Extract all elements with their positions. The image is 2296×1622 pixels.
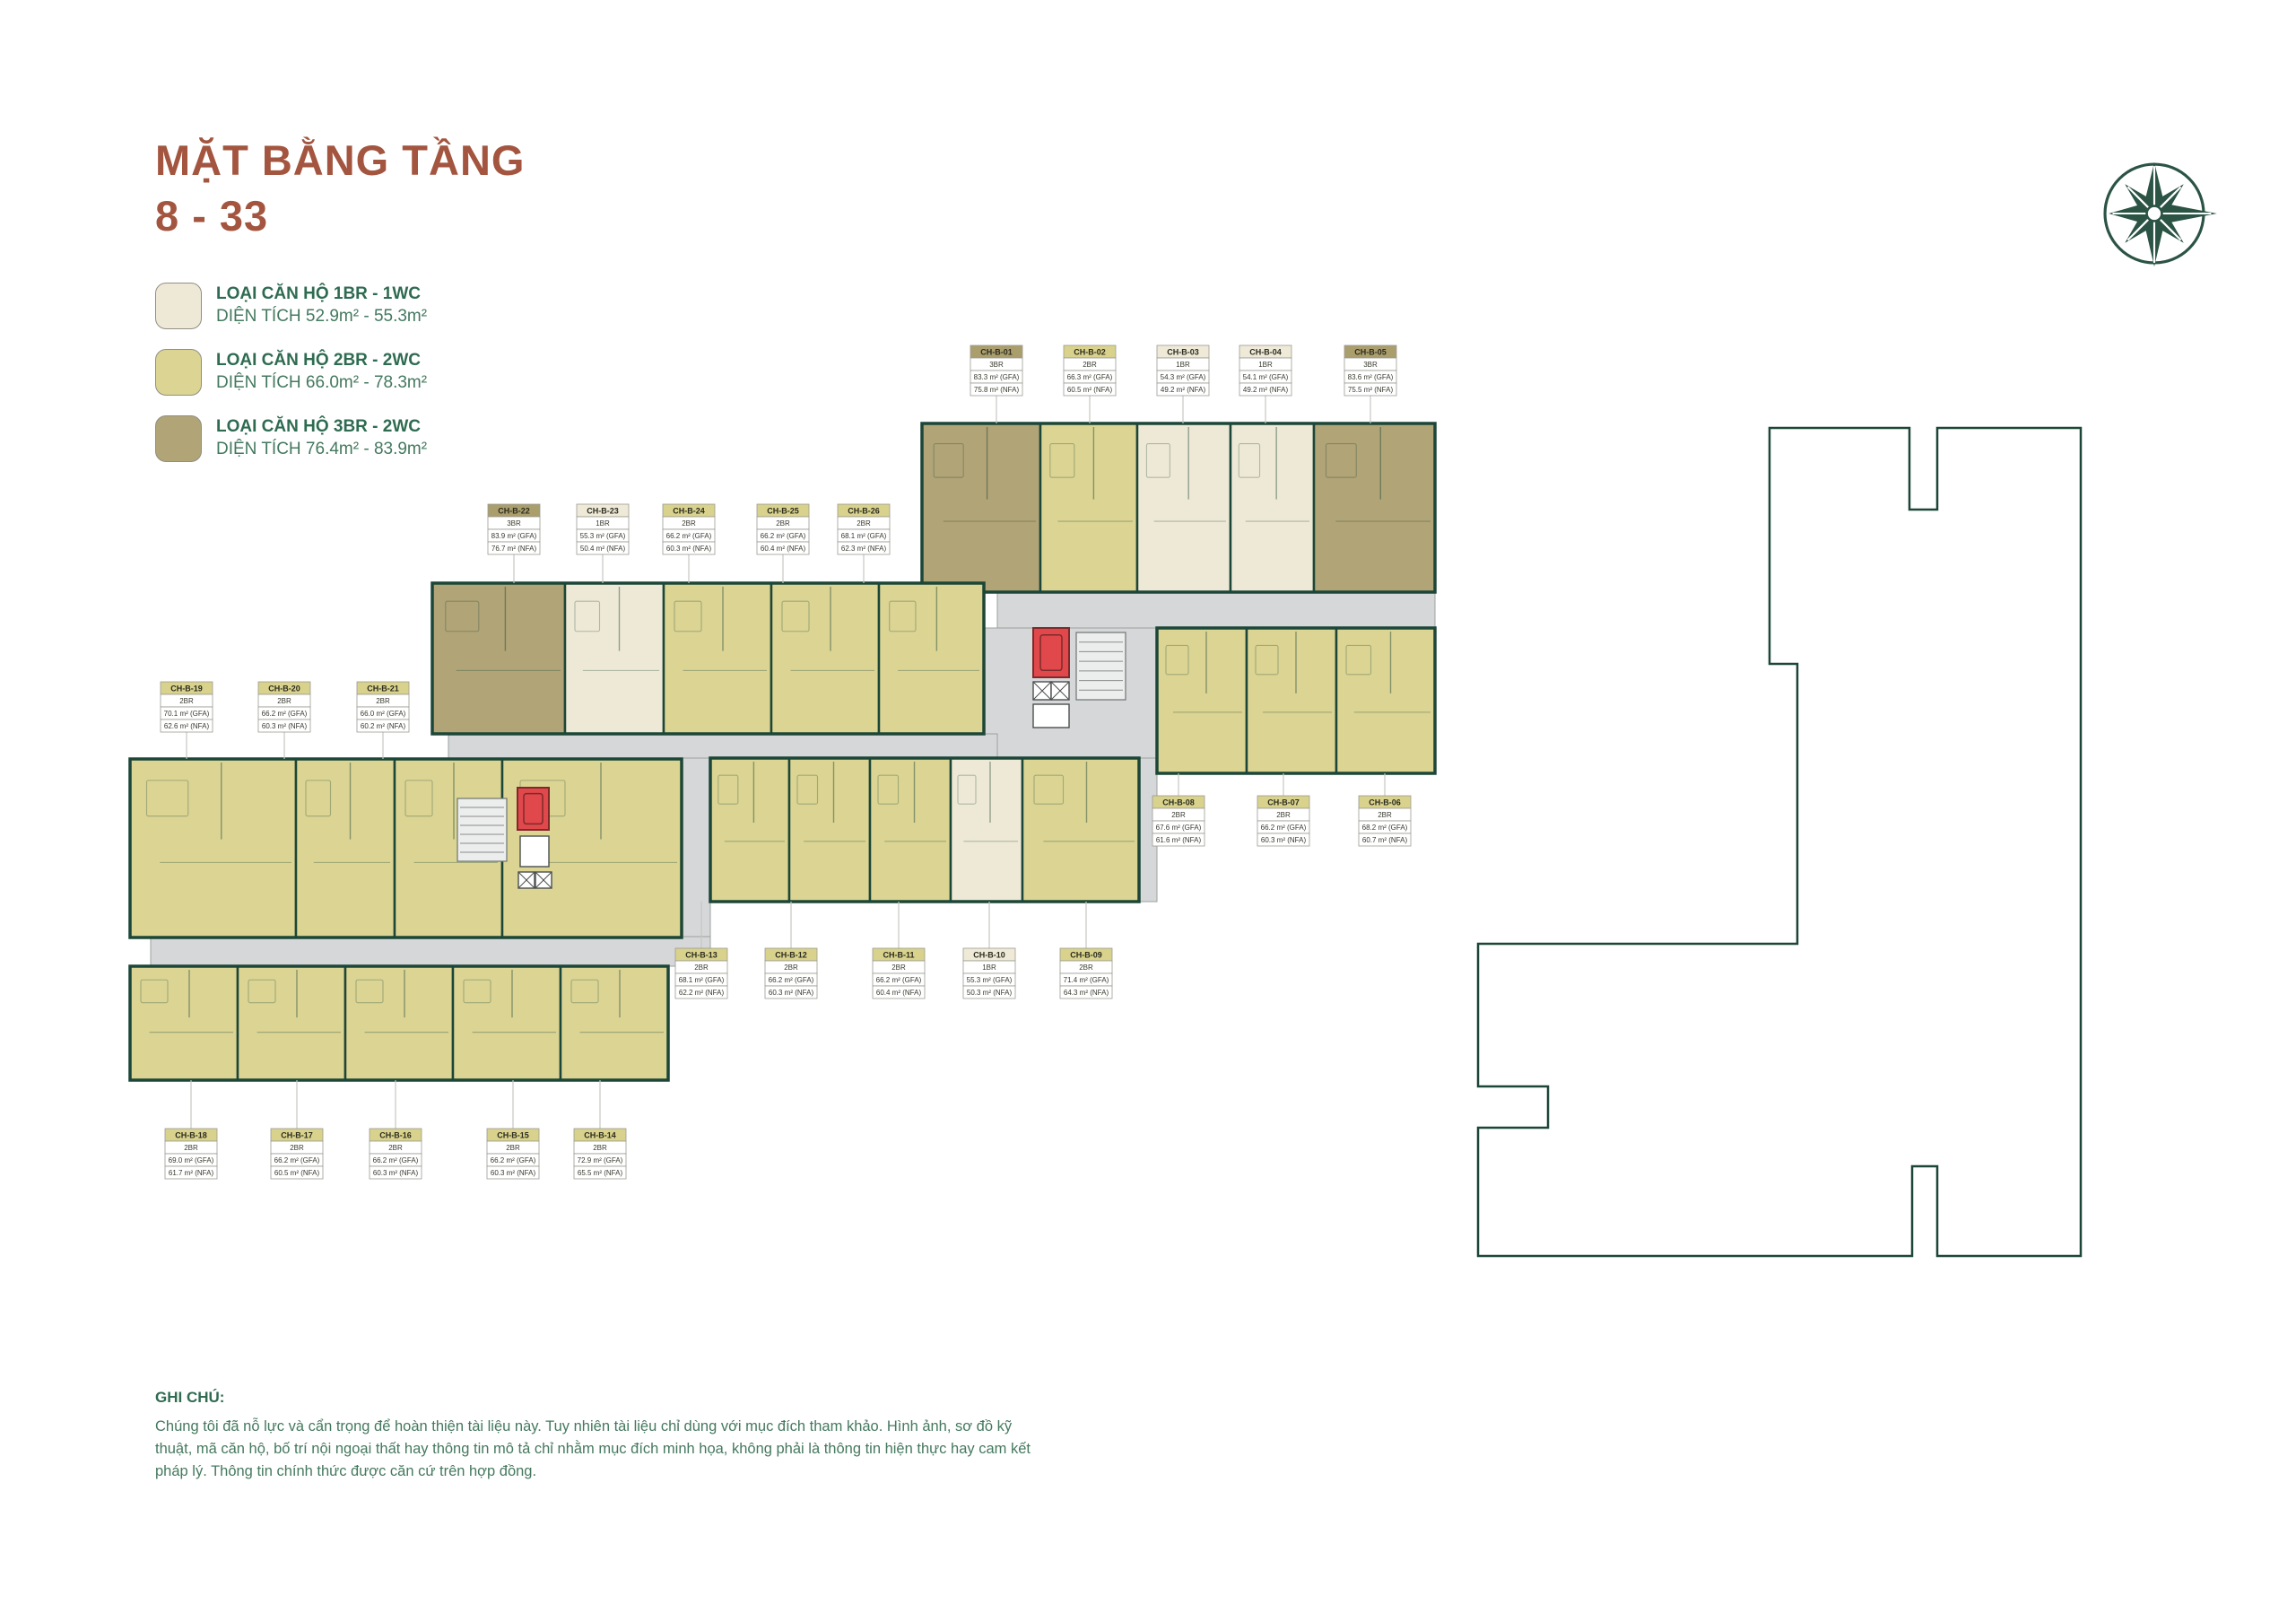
unit-label-text: 60.3 m² (NFA) bbox=[491, 1169, 536, 1177]
elevator-shaft bbox=[1033, 704, 1069, 728]
unit-label-text: 66.2 m² (GFA) bbox=[491, 1156, 536, 1164]
apartment-unit bbox=[922, 423, 1040, 592]
unit-label-text: 54.3 m² (GFA) bbox=[1161, 373, 1206, 381]
unit-label-text: 55.3 m² (GFA) bbox=[967, 976, 1013, 984]
unit-label-text: 75.5 m² (NFA) bbox=[1348, 386, 1394, 394]
stairwell bbox=[1076, 632, 1126, 700]
unit-label-text: 66.2 m² (GFA) bbox=[666, 532, 712, 540]
apartment-unit bbox=[238, 966, 345, 1080]
apartment-unit bbox=[130, 966, 238, 1080]
apartment-unit bbox=[664, 583, 771, 734]
unit-label-text: CH-B-21 bbox=[367, 685, 399, 693]
unit-label-text: 60.3 m² (NFA) bbox=[262, 722, 308, 730]
unit-label-text: 55.3 m² (GFA) bbox=[580, 532, 626, 540]
unit-label-text: 60.3 m² (NFA) bbox=[666, 545, 712, 553]
unit-label-text: 2BR bbox=[1083, 361, 1097, 369]
unit-label-text: 50.3 m² (NFA) bbox=[967, 989, 1013, 997]
apartment-unit bbox=[879, 583, 984, 734]
unit-label-text: 2BR bbox=[1276, 811, 1291, 819]
unit-label-text: 2BR bbox=[694, 964, 709, 972]
unit-label-text: 75.8 m² (NFA) bbox=[974, 386, 1020, 394]
unit-label-text: CH-B-20 bbox=[268, 685, 300, 693]
unit-label-text: 50.4 m² (NFA) bbox=[580, 545, 626, 553]
apartment-unit bbox=[1022, 758, 1139, 902]
unit-label-text: CH-B-10 bbox=[973, 951, 1005, 960]
unit-label-text: 2BR bbox=[682, 519, 696, 528]
unit-label-text: 49.2 m² (NFA) bbox=[1161, 386, 1206, 394]
corridor bbox=[997, 592, 1435, 628]
unit-label-text: 62.6 m² (NFA) bbox=[164, 722, 210, 730]
unit-label-text: CH-B-08 bbox=[1162, 798, 1195, 807]
unit-label-text: CH-B-18 bbox=[175, 1131, 207, 1140]
unit-label-text: 64.3 m² (NFA) bbox=[1064, 989, 1109, 997]
unit-label-text: CH-B-09 bbox=[1070, 951, 1102, 960]
apartment-unit bbox=[951, 758, 1022, 902]
unit-label-text: 62.3 m² (NFA) bbox=[841, 545, 887, 553]
unit-label-text: 76.7 m² (NFA) bbox=[491, 545, 537, 553]
apartment-unit bbox=[1314, 423, 1435, 592]
unit-label-text: 2BR bbox=[277, 697, 291, 705]
unit-label-text: 66.2 m² (GFA) bbox=[274, 1156, 320, 1164]
unit-label-text: CH-B-22 bbox=[498, 507, 530, 516]
unit-label-text: 2BR bbox=[179, 697, 194, 705]
unit-label-text: 60.4 m² (NFA) bbox=[876, 989, 922, 997]
apartment-unit bbox=[130, 759, 296, 937]
unit-label-text: CH-B-25 bbox=[767, 507, 799, 516]
unit-label-text: 1BR bbox=[1176, 361, 1190, 369]
unit-label-text: 2BR bbox=[290, 1144, 304, 1152]
apartment-unit bbox=[789, 758, 870, 902]
unit-label-text: 2BR bbox=[184, 1144, 198, 1152]
unit-label-text: 66.2 m² (GFA) bbox=[876, 976, 922, 984]
unit-label-text: 60.2 m² (NFA) bbox=[361, 722, 406, 730]
corridor bbox=[448, 734, 997, 758]
unit-label-text: 69.0 m² (GFA) bbox=[169, 1156, 214, 1164]
unit-label-text: 2BR bbox=[1378, 811, 1392, 819]
unit-label-text: 60.5 m² (NFA) bbox=[274, 1169, 320, 1177]
apartment-unit bbox=[1040, 423, 1137, 592]
unit-label-text: 66.3 m² (GFA) bbox=[1067, 373, 1113, 381]
note-block: GHI CHÚ: Chúng tôi đã nỗ lực và cẩn trọn… bbox=[155, 1389, 1052, 1483]
floor-plan: CH-B-013BR83.3 m² (GFA)75.8 m² (NFA)CH-B… bbox=[0, 0, 2296, 1622]
unit-label-text: 62.2 m² (NFA) bbox=[679, 989, 725, 997]
unit-label-text: CH-B-12 bbox=[775, 951, 807, 960]
unit-label-text: CH-B-26 bbox=[848, 507, 880, 516]
unit-label-text: 60.7 m² (NFA) bbox=[1362, 836, 1408, 844]
unit-label-text: 83.9 m² (GFA) bbox=[491, 532, 537, 540]
unit-label-text: CH-B-02 bbox=[1074, 348, 1106, 357]
unit-label-text: CH-B-04 bbox=[1249, 348, 1282, 357]
unit-label-text: CH-B-07 bbox=[1267, 798, 1300, 807]
unit-label-text: 60.3 m² (NFA) bbox=[373, 1169, 419, 1177]
apartment-unit bbox=[453, 966, 561, 1080]
apartment-unit bbox=[565, 583, 664, 734]
unit-label-text: 68.2 m² (GFA) bbox=[1362, 824, 1408, 832]
unit-label-text: 2BR bbox=[388, 1144, 403, 1152]
apartment-unit bbox=[1231, 423, 1314, 592]
apartment-unit bbox=[345, 966, 453, 1080]
unit-label-text: 60.3 m² (NFA) bbox=[769, 989, 814, 997]
unit-label-text: 65.5 m² (NFA) bbox=[578, 1169, 623, 1177]
elevator-shaft bbox=[520, 836, 549, 867]
corridor bbox=[151, 937, 710, 966]
apartment-unit bbox=[710, 758, 789, 902]
unit-label-text: 68.1 m² (GFA) bbox=[679, 976, 725, 984]
unit-label-text: 49.2 m² (NFA) bbox=[1243, 386, 1289, 394]
apartment-unit bbox=[870, 758, 951, 902]
unit-label-text: 2BR bbox=[857, 519, 871, 528]
unit-label-text: CH-B-24 bbox=[673, 507, 705, 516]
unit-label-text: CH-B-11 bbox=[883, 951, 914, 960]
unit-label-text: 83.3 m² (GFA) bbox=[974, 373, 1020, 381]
unit-label-text: 1BR bbox=[982, 964, 996, 972]
unit-label-text: 68.1 m² (GFA) bbox=[841, 532, 887, 540]
unit-label-text: 2BR bbox=[891, 964, 906, 972]
unit-label-text: CH-B-03 bbox=[1167, 348, 1199, 357]
unit-label-text: CH-B-19 bbox=[170, 685, 203, 693]
apartment-unit bbox=[296, 759, 395, 937]
unit-label-text: CH-B-17 bbox=[281, 1131, 313, 1140]
unit-label-text: 3BR bbox=[1363, 361, 1378, 369]
adjacent-tower-outline bbox=[1478, 428, 2081, 1256]
unit-label-text: 2BR bbox=[776, 519, 790, 528]
unit-label-text: CH-B-01 bbox=[980, 348, 1013, 357]
unit-label-text: CH-B-15 bbox=[497, 1131, 529, 1140]
unit-label-text: 2BR bbox=[1079, 964, 1093, 972]
unit-label-text: 3BR bbox=[507, 519, 521, 528]
unit-label-text: 60.4 m² (NFA) bbox=[761, 545, 806, 553]
unit-label-text: 66.2 m² (GFA) bbox=[761, 532, 806, 540]
unit-label-text: CH-B-13 bbox=[685, 951, 717, 960]
unit-label-text: 3BR bbox=[989, 361, 1004, 369]
apartment-unit bbox=[432, 583, 565, 734]
unit-label-text: CH-B-05 bbox=[1354, 348, 1387, 357]
unit-label-text: 61.6 m² (NFA) bbox=[1156, 836, 1202, 844]
unit-label-text: 71.4 m² (GFA) bbox=[1064, 976, 1109, 984]
unit-label-text: CH-B-14 bbox=[584, 1131, 616, 1140]
unit-label-text: 66.2 m² (GFA) bbox=[1261, 824, 1307, 832]
unit-label-text: 66.0 m² (GFA) bbox=[361, 710, 406, 718]
unit-label-text: 54.1 m² (GFA) bbox=[1243, 373, 1289, 381]
apartment-unit bbox=[1157, 628, 1247, 773]
unit-label-text: 66.2 m² (GFA) bbox=[769, 976, 814, 984]
unit-label-text: 2BR bbox=[784, 964, 798, 972]
unit-label-text: 83.6 m² (GFA) bbox=[1348, 373, 1394, 381]
apartment-unit bbox=[561, 966, 668, 1080]
unit-label-text: 72.9 m² (GFA) bbox=[578, 1156, 623, 1164]
unit-label-text: 67.6 m² (GFA) bbox=[1156, 824, 1202, 832]
unit-label-text: 2BR bbox=[593, 1144, 607, 1152]
unit-label-text: 70.1 m² (GFA) bbox=[164, 710, 210, 718]
unit-label-text: 2BR bbox=[1171, 811, 1186, 819]
note-body: Chúng tôi đã nỗ lực và cẩn trọng để hoàn… bbox=[155, 1416, 1052, 1483]
unit-label-text: 66.2 m² (GFA) bbox=[373, 1156, 419, 1164]
floorplan-brochure-page: { "page": { "title_line1": "MẶT BẰNG TẦN… bbox=[0, 0, 2296, 1622]
apartment-unit bbox=[1137, 423, 1231, 592]
unit-label-text: 1BR bbox=[1258, 361, 1273, 369]
apartment-unit bbox=[1336, 628, 1435, 773]
unit-label-text: 2BR bbox=[376, 697, 390, 705]
unit-label-text: CH-B-16 bbox=[379, 1131, 412, 1140]
corridor bbox=[984, 628, 1157, 758]
unit-label-text: CH-B-06 bbox=[1369, 798, 1401, 807]
unit-label-text: 60.3 m² (NFA) bbox=[1261, 836, 1307, 844]
unit-label-text: 61.7 m² (NFA) bbox=[169, 1169, 214, 1177]
note-heading: GHI CHÚ: bbox=[155, 1389, 1052, 1407]
unit-label-text: 2BR bbox=[506, 1144, 520, 1152]
apartment-unit bbox=[1247, 628, 1336, 773]
unit-label-text: CH-B-23 bbox=[587, 507, 619, 516]
unit-label-text: 60.5 m² (NFA) bbox=[1067, 386, 1113, 394]
unit-label-text: 1BR bbox=[596, 519, 610, 528]
unit-label-text: 66.2 m² (GFA) bbox=[262, 710, 308, 718]
apartment-unit bbox=[771, 583, 879, 734]
